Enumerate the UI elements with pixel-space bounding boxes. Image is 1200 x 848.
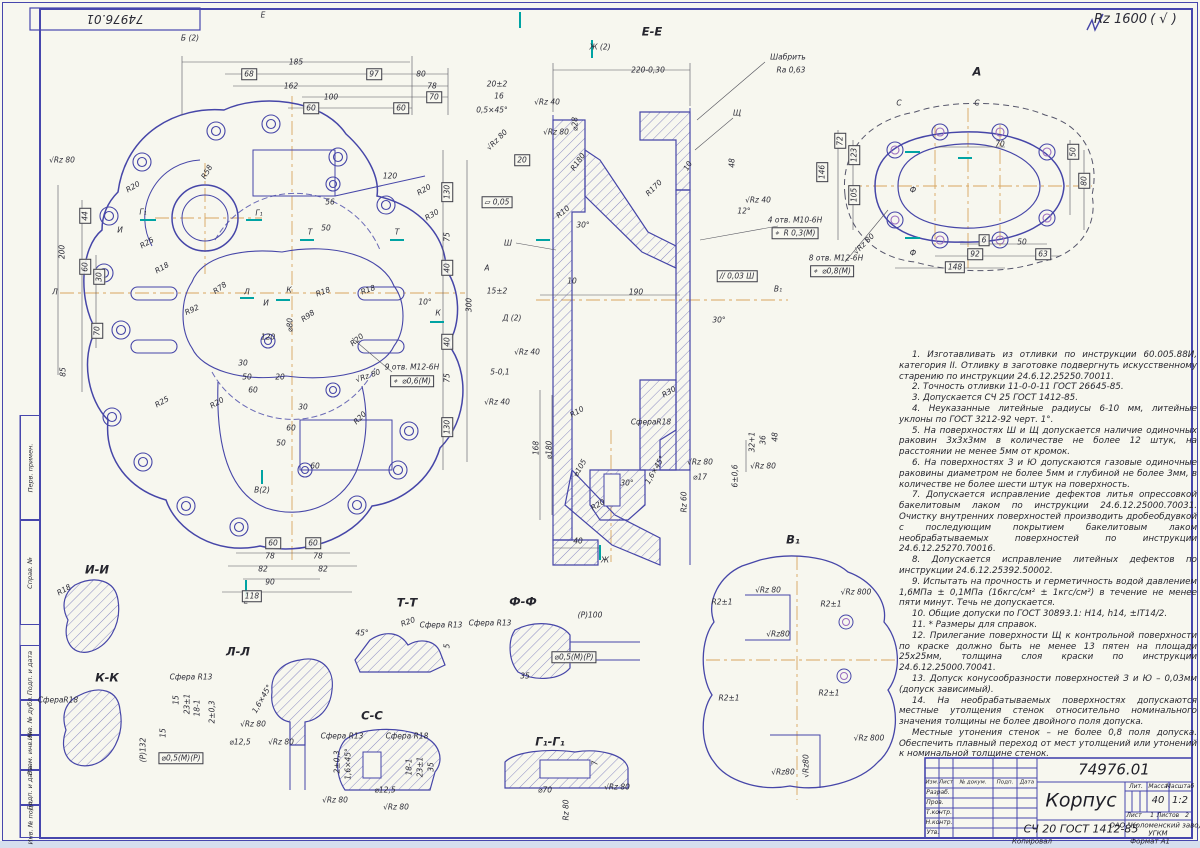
dim-label: 92 bbox=[967, 248, 983, 260]
dim-label: R30 bbox=[661, 385, 678, 399]
view-title-label: С-С bbox=[361, 710, 383, 722]
dim-label: 15 bbox=[159, 728, 167, 738]
dim-label: 20±2 bbox=[487, 80, 508, 88]
dim-label: 40 bbox=[441, 334, 453, 350]
title-block-row-nkontr: Н.контр. bbox=[926, 820, 953, 826]
dim-label: 80 bbox=[416, 70, 426, 78]
dim-label: С bbox=[896, 99, 901, 107]
dim-label: ⌀12,5 bbox=[229, 738, 250, 746]
dim-label: R25 bbox=[139, 236, 156, 250]
dim-label: (Р)100 bbox=[578, 611, 603, 619]
view-title-label: Т-Т bbox=[397, 597, 417, 609]
dim-label: 30 bbox=[298, 403, 308, 411]
dim-label: 23±1 bbox=[183, 694, 191, 715]
dim-label: 60 bbox=[305, 537, 321, 549]
dim-label: ⌀0,5(М)(Р) bbox=[551, 651, 596, 663]
dim-label: 4 отв. М10-6Н bbox=[768, 216, 822, 224]
dim-label: 30° bbox=[620, 479, 633, 487]
dim-label: 40 bbox=[441, 260, 453, 276]
dim-label: 75 bbox=[443, 373, 451, 383]
dim-label: 0,5×45° bbox=[476, 106, 508, 114]
dim-label: 23±1 bbox=[416, 757, 424, 778]
dim-label: ⌀180 bbox=[545, 441, 553, 460]
dim-label: 30° bbox=[712, 316, 725, 324]
dim-label: 50 bbox=[1017, 238, 1027, 246]
dim-label: 30 bbox=[93, 269, 105, 285]
dim-label: К bbox=[286, 286, 291, 294]
dim-label: СфераR18 bbox=[38, 696, 78, 704]
title-block-row-prov: Пров. bbox=[926, 800, 943, 806]
dim-label: R58 bbox=[200, 164, 214, 181]
dim-label: √Rz 80 bbox=[750, 462, 776, 470]
title-block-row-utv: Утв. bbox=[927, 830, 940, 836]
dim-label: √Rz 80 bbox=[268, 738, 294, 746]
dim-label: 5-0,1 bbox=[490, 368, 509, 376]
dim-label: 70 bbox=[995, 140, 1005, 148]
view-title-label: Ф-Ф bbox=[509, 596, 537, 608]
dim-label: // 0,03 Ш bbox=[717, 270, 758, 282]
dim-label: 1,6×45° bbox=[644, 454, 666, 485]
title-block-name: Корпус bbox=[1045, 792, 1116, 811]
dim-label: Г₁ bbox=[139, 208, 146, 216]
dim-label: R98 bbox=[300, 309, 316, 324]
view-title-label: А bbox=[973, 66, 982, 78]
dim-label: 78 bbox=[427, 82, 437, 90]
dim-label: Сфера R13 bbox=[170, 673, 213, 681]
dim-label: 15 bbox=[172, 695, 180, 705]
dim-label: 63 bbox=[1035, 248, 1051, 260]
dim-label: √Rz 80 bbox=[322, 796, 348, 804]
dim-label: Ж (2) bbox=[589, 43, 610, 51]
view-title-label: И-И bbox=[85, 564, 109, 576]
dim-label: ⌀80 bbox=[286, 318, 294, 332]
dim-label: 78 bbox=[265, 552, 275, 560]
dim-label: 60 bbox=[393, 102, 409, 114]
dim-label: R18 bbox=[56, 583, 73, 597]
dim-label: Сфера R13 bbox=[420, 621, 463, 629]
dim-label: ⌀28 bbox=[571, 117, 579, 131]
dim-label: √Rz 80 bbox=[604, 783, 630, 791]
title-block-format: Формат А1 bbox=[1130, 839, 1170, 846]
dim-label: 16 bbox=[494, 92, 504, 100]
dim-label: 220-0,30 bbox=[631, 66, 665, 74]
dim-label: R92 bbox=[184, 303, 201, 316]
dim-label: Сфера R13 bbox=[321, 732, 364, 740]
dim-label: 56 bbox=[325, 198, 335, 206]
dim-label: R20 bbox=[125, 180, 142, 194]
dim-label: 146 bbox=[816, 162, 828, 182]
dim-label: 97 bbox=[366, 68, 382, 80]
title-block-company-line1: ОАО "Коломенский завод" bbox=[1109, 823, 1200, 830]
dim-label: √Rz 80 bbox=[383, 803, 409, 811]
dim-label: R2±1 bbox=[711, 598, 732, 606]
dim-label: 35 bbox=[427, 762, 435, 772]
dim-label: В₁ bbox=[774, 285, 782, 293]
dim-label: ⌖ R 0,3(М) bbox=[772, 227, 819, 239]
dim-label: R20 bbox=[416, 183, 433, 197]
dim-label: √Rz 80 bbox=[49, 156, 75, 164]
dim-label: СфераR18 bbox=[631, 418, 671, 426]
dim-label: 130 bbox=[441, 182, 453, 202]
title-block-company-line2: УГКМ bbox=[1148, 831, 1167, 838]
dim-label: Щ bbox=[733, 109, 741, 117]
dim-label: Ф bbox=[910, 249, 916, 257]
dim-label: 50 bbox=[1067, 144, 1079, 160]
title-block-row-razrab: Разраб. bbox=[926, 790, 950, 796]
dim-label: ⌀70 bbox=[538, 786, 552, 794]
dim-label: √Rz 80 bbox=[543, 128, 569, 136]
dim-label: ⌖ ⌀0,8(М) bbox=[810, 265, 854, 277]
dim-label: 60 bbox=[248, 386, 258, 394]
dim-label: Ф bbox=[910, 186, 916, 194]
dim-label: R2±1 bbox=[818, 689, 839, 697]
title-block-col-izm: Изм. bbox=[926, 780, 939, 786]
view-title-label: К-К bbox=[95, 672, 119, 684]
dim-label: 72 bbox=[834, 133, 846, 149]
dim-label: Б (2) bbox=[181, 34, 199, 42]
dim-label: 85 bbox=[59, 367, 67, 377]
dim-label: 45° bbox=[355, 629, 368, 637]
view-title-label: В₁ bbox=[786, 534, 800, 546]
dim-label: 40 bbox=[573, 537, 583, 545]
dim-label: √Rz 40 bbox=[484, 398, 510, 406]
dim-label: R180 bbox=[569, 152, 586, 172]
dim-label: ⌀105 bbox=[572, 458, 588, 478]
dim-label: 30° bbox=[576, 221, 589, 229]
view-title-label: Е-Е bbox=[642, 26, 662, 38]
dim-label: 18-1 bbox=[193, 699, 201, 716]
dim-label: 7 bbox=[591, 761, 599, 766]
dim-label: √Rz 80 bbox=[755, 586, 781, 594]
dim-label: 20 bbox=[275, 373, 285, 381]
dim-label: Ж bbox=[601, 556, 609, 564]
dim-label: ⌀17 bbox=[693, 473, 707, 481]
dim-label: 10 bbox=[567, 277, 577, 285]
dim-label: 75 bbox=[443, 232, 451, 242]
title-block-col-list: Лист bbox=[939, 780, 953, 786]
dim-label: Ш bbox=[504, 239, 512, 247]
dim-label: И bbox=[117, 226, 123, 234]
dim-label: 60 bbox=[286, 424, 296, 432]
dim-label: Е bbox=[261, 11, 266, 19]
dim-label: 32+1 bbox=[748, 432, 756, 453]
title-block-sheets-label: Листов bbox=[1157, 813, 1179, 819]
title-block-copied: Копировал bbox=[1012, 839, 1052, 846]
dim-label: √Rz 80 bbox=[687, 458, 713, 466]
dim-label: 6±0,6 bbox=[731, 465, 739, 488]
dim-label: 30 bbox=[238, 359, 248, 367]
dim-label: 36 bbox=[759, 435, 767, 445]
dim-label: ⌖ ⌀0,6(М) bbox=[390, 375, 434, 387]
dim-label: 190 bbox=[629, 288, 643, 296]
dim-label: Rz 60 bbox=[680, 491, 688, 512]
dim-label: 148 bbox=[945, 261, 965, 273]
title-block-scale-label: Масштаб bbox=[1166, 784, 1195, 790]
dim-label: 90 bbox=[265, 578, 275, 586]
dim-label: А bbox=[484, 264, 489, 272]
dim-label: √Rz 80 bbox=[852, 232, 876, 256]
dim-label: Rz 80 bbox=[562, 799, 570, 820]
dim-label: 12° bbox=[737, 207, 750, 215]
dim-label: Т bbox=[308, 228, 313, 236]
dim-label: (Р)132 bbox=[139, 738, 147, 763]
dim-label: 60 bbox=[265, 537, 281, 549]
dim-label: R20 bbox=[590, 498, 607, 512]
dim-label: R170 bbox=[644, 178, 663, 197]
dim-label: 18-1 bbox=[405, 758, 413, 775]
dim-label: √Rz80 bbox=[771, 768, 794, 776]
dim-label: R20 bbox=[209, 396, 226, 410]
dim-label: 50 bbox=[242, 373, 252, 381]
dim-label: 105 bbox=[848, 185, 860, 205]
dim-label: √Rz 800 bbox=[841, 588, 872, 596]
dim-label: К bbox=[435, 309, 440, 317]
title-block-mass: 40 bbox=[1152, 796, 1165, 806]
dim-label: 60 bbox=[310, 462, 320, 470]
dim-label: ⌀12,5 bbox=[374, 786, 395, 794]
dim-label: R78 bbox=[212, 281, 228, 296]
dim-label: 80 bbox=[1078, 173, 1090, 189]
view-title-label: Г₁-Г₁ bbox=[535, 736, 565, 748]
dim-label: 48 bbox=[771, 432, 779, 442]
dim-label: R18 bbox=[154, 261, 171, 275]
title-block-col-doc: № докум. bbox=[959, 780, 986, 786]
dim-label: Л bbox=[52, 288, 58, 296]
dim-label: 2±0,3 bbox=[208, 701, 216, 724]
dim-label: 120 bbox=[261, 333, 275, 341]
dim-label: R10 bbox=[555, 204, 571, 219]
dim-label: R20 bbox=[352, 410, 368, 426]
dim-label: 118 bbox=[242, 590, 262, 602]
dim-label: 168 bbox=[532, 441, 540, 455]
dim-label: R20 bbox=[400, 616, 416, 628]
title-block-lit-label: Лит. bbox=[1129, 784, 1143, 790]
dim-label: R18 bbox=[315, 286, 331, 298]
dim-label: 60 bbox=[79, 259, 91, 275]
dim-label: 82 bbox=[258, 565, 268, 573]
title-block-sheets: 2 bbox=[1185, 813, 1189, 819]
dim-label: R2±1 bbox=[718, 694, 739, 702]
dim-label: 185 bbox=[289, 58, 303, 66]
dim-label: 5 bbox=[443, 644, 451, 649]
dim-label: С bbox=[974, 99, 979, 107]
dim-label: √Rz 80 bbox=[355, 368, 382, 384]
title-block-number: 74976.01 bbox=[1078, 763, 1150, 778]
dim-label: 130 bbox=[441, 417, 453, 437]
dim-label: 1,6×45° bbox=[344, 748, 352, 780]
dim-label: √Rz 40 bbox=[745, 196, 771, 204]
dim-label: Л bbox=[244, 288, 250, 296]
dim-label: Г₁ bbox=[255, 209, 262, 217]
dim-label: Сфера R18 bbox=[386, 732, 429, 740]
dim-label: Т bbox=[395, 228, 400, 236]
dim-label: R25 bbox=[154, 395, 171, 409]
title-block-sheet-label: Лист bbox=[1126, 813, 1141, 819]
dim-label: 68 bbox=[241, 68, 257, 80]
dim-label: 9 отв. М12-6Н bbox=[385, 363, 439, 371]
dim-label: ⌀0,5(М)(Р) bbox=[158, 752, 203, 764]
dim-label: √Rz80 bbox=[766, 630, 789, 638]
title-block-mass-label: Масса bbox=[1148, 784, 1167, 790]
title-block-row-tkontr: Т.контр. bbox=[926, 810, 952, 816]
dim-label: √Rz 80 bbox=[240, 720, 266, 728]
dim-label: 2±0,3 bbox=[333, 751, 341, 774]
dim-label: √Rz 40 bbox=[534, 98, 560, 106]
dim-label: Сфера R13 bbox=[469, 619, 512, 627]
title-block-scale: 1:2 bbox=[1172, 796, 1188, 806]
dim-label: Ra 0,63 bbox=[777, 66, 806, 74]
dim-label: 1,6×45° bbox=[251, 683, 273, 714]
dim-label: И bbox=[263, 299, 269, 307]
view-title-label: Л-Л bbox=[226, 646, 250, 658]
dim-label: R10 bbox=[569, 405, 586, 419]
dim-label: 15±2 bbox=[487, 287, 508, 295]
dim-label: R30 bbox=[424, 208, 441, 222]
dim-label: R2±1 bbox=[820, 600, 841, 608]
dim-label: R20 bbox=[349, 332, 365, 347]
dim-label: 200 bbox=[58, 245, 66, 259]
title-block-col-data: Дата bbox=[1020, 780, 1034, 786]
dim-label: 48 bbox=[728, 158, 736, 168]
annotation-layer: Б (2)ЕЕ18568978016278100706060√Rz 80R20Г… bbox=[0, 0, 1200, 848]
dim-label: Шабрить bbox=[770, 53, 806, 61]
dim-label: 60 bbox=[303, 102, 319, 114]
dim-label: ▱ 0,05 bbox=[482, 196, 513, 208]
dim-label: 120 bbox=[383, 172, 397, 180]
dim-label: 44 bbox=[79, 208, 91, 224]
dim-label: 82 bbox=[318, 565, 328, 573]
title-block-col-podp: Подп. bbox=[997, 780, 1014, 786]
dim-label: √Rz 800 bbox=[854, 734, 885, 742]
dim-label: 50 bbox=[276, 439, 286, 447]
dim-label: √Rz80 bbox=[802, 754, 810, 777]
dim-label: 35 bbox=[520, 672, 530, 680]
drawing-sheet: 74976.01 Rz 1600 ( √ ) Перв. примен. Спр… bbox=[0, 0, 1200, 848]
dim-label: Д (2) bbox=[503, 314, 522, 322]
dim-label: √Rz 40 bbox=[514, 348, 540, 356]
dim-label: 8 отв. М12-6Н bbox=[809, 254, 863, 262]
dim-label: В(2) bbox=[254, 486, 270, 494]
dim-label: 20 bbox=[514, 154, 530, 166]
title-block-sheet: 1 bbox=[1150, 813, 1154, 819]
dim-label: 300 bbox=[465, 298, 473, 312]
dim-label: 100 bbox=[324, 93, 338, 101]
dim-label: 10° bbox=[418, 298, 431, 306]
dim-label: √Rz 80 bbox=[485, 128, 509, 152]
dim-label: 162 bbox=[284, 82, 298, 90]
dim-label: 78 bbox=[313, 552, 323, 560]
dim-label: 70 bbox=[426, 91, 442, 103]
dim-label: 50 bbox=[321, 224, 331, 232]
dim-label: 123 bbox=[848, 145, 860, 165]
dim-label: R18 bbox=[360, 284, 376, 296]
dim-label: 70 bbox=[91, 323, 103, 339]
dim-label: 6 bbox=[979, 234, 990, 246]
dim-label: 10 bbox=[682, 160, 693, 172]
